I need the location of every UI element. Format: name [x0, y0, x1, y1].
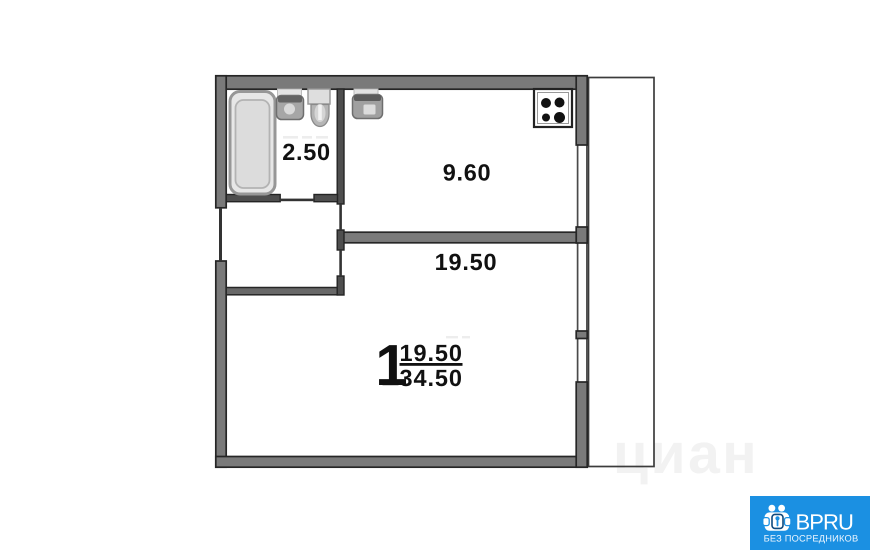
- svg-text:BPRU: BPRU: [796, 510, 854, 535]
- svg-text:34.50: 34.50: [400, 365, 463, 391]
- svg-text:БЕЗ ПОСРЕДНИКОВ: БЕЗ ПОСРЕДНИКОВ: [764, 533, 859, 543]
- svg-text:19.50: 19.50: [400, 340, 463, 366]
- svg-text:циан: циан: [613, 422, 759, 486]
- svg-text:2.50: 2.50: [282, 139, 331, 165]
- svg-text:9.60: 9.60: [443, 160, 492, 186]
- svg-text:19.50: 19.50: [435, 249, 498, 275]
